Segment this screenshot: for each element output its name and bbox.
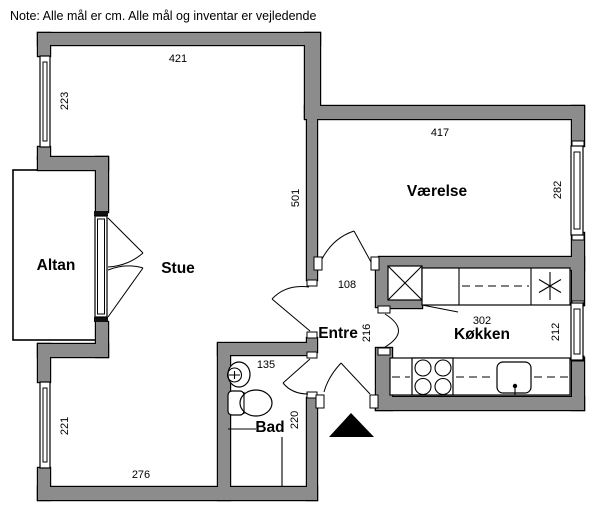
room-label-stue: Stue (161, 260, 195, 277)
door-stue-entre (272, 287, 310, 332)
dim-bad-width: 135 (257, 359, 275, 371)
dim-entre-depth: 216 (361, 324, 373, 342)
window-bedroom (571, 146, 583, 235)
balcony-outline (13, 170, 97, 340)
dim-stue-width-top: 421 (169, 53, 187, 65)
shaft-x-box-icon (388, 266, 422, 300)
dim-vaerelse-width: 417 (431, 127, 449, 139)
entrance-arrow-icon (329, 413, 374, 437)
window-left-upper (40, 56, 50, 147)
dim-window-left-lower: 221 (59, 417, 71, 435)
room-label-koekken: Køkken (454, 326, 510, 343)
balcony-door-frame (95, 216, 107, 317)
dim-entre-opening: 108 (338, 279, 356, 291)
door-koekken (385, 305, 458, 347)
toilet-icon (228, 390, 272, 416)
stove-icon (412, 358, 453, 395)
window-kitchen (571, 303, 583, 360)
door-vaerelse (322, 231, 371, 262)
kitchen-counter-top (422, 268, 570, 305)
dim-koekken-width: 302 (473, 315, 491, 327)
window-left-lower (40, 382, 50, 468)
washbasin-icon (228, 362, 251, 387)
door-bad (283, 359, 310, 394)
dim-vaerelse-depth: 282 (552, 181, 564, 199)
room-label-vaerelse: Værelse (407, 183, 468, 200)
room-label-entre: Entre (318, 325, 358, 342)
room-label-bad: Bad (255, 419, 284, 436)
kitchen-sink-icon (497, 362, 531, 395)
floorplan-drawing: Note: Alle mål er cm. Alle mål og invent… (0, 0, 600, 511)
dim-window-left-upper: 223 (59, 92, 71, 110)
dim-stue-width-bottom: 276 (132, 469, 150, 481)
room-label-altan: Altan (37, 257, 76, 274)
note-text: Note: Alle mål er cm. Alle mål og invent… (10, 9, 316, 23)
dimension-leader-lines (228, 429, 282, 486)
door-entrance (324, 363, 370, 394)
dim-koekken-depth: 212 (550, 323, 562, 341)
floorplan-page: Note: Alle mål er cm. Alle mål og invent… (0, 0, 600, 511)
balcony-french-doors (108, 218, 143, 317)
dim-bad-depth: 220 (289, 411, 301, 429)
dim-stue-depth: 501 (290, 189, 302, 207)
